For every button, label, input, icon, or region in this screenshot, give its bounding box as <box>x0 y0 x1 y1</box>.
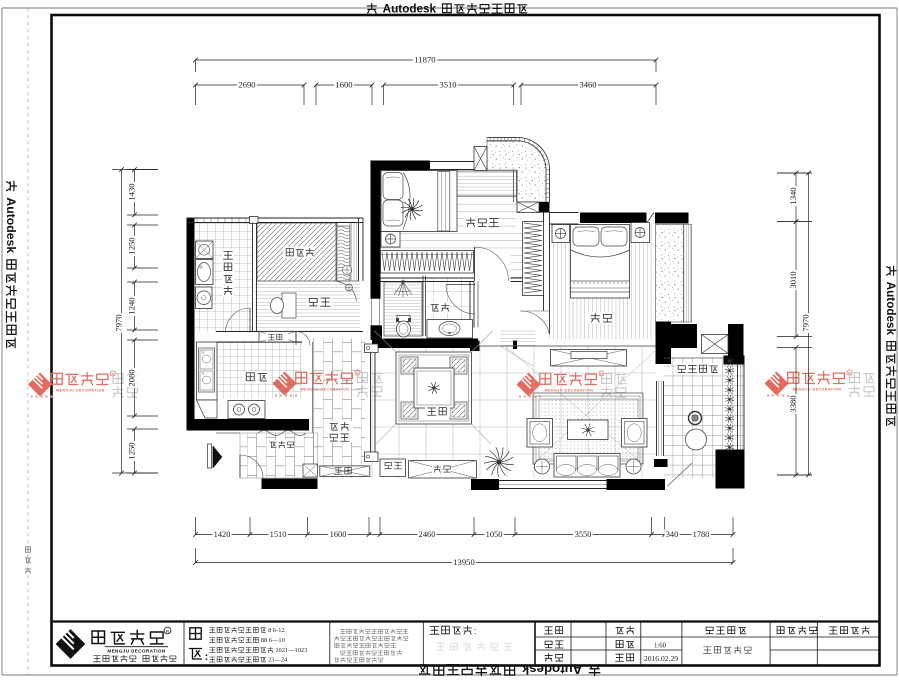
svg-text:3460: 3460 <box>579 79 596 89</box>
svg-text:1250: 1250 <box>127 237 137 254</box>
svg-text:2460: 2460 <box>419 530 436 539</box>
svg-text:MENGJU DECORATION: MENGJU DECORATION <box>56 388 105 392</box>
svg-text:88 6—10: 88 6—10 <box>261 637 285 644</box>
svg-text:1430: 1430 <box>127 183 137 200</box>
svg-text:7970: 7970 <box>114 314 124 331</box>
svg-text:1600: 1600 <box>330 530 347 539</box>
svg-text:1780: 1780 <box>693 530 710 539</box>
svg-text:2016.02.29: 2016.02.29 <box>644 654 678 663</box>
svg-text:2080: 2080 <box>127 369 137 386</box>
svg-text:1250: 1250 <box>127 442 137 459</box>
svg-text:8 6-12: 8 6-12 <box>268 627 285 634</box>
svg-text:11870: 11870 <box>414 54 435 64</box>
svg-text:Autodesk: Autodesk <box>521 662 582 677</box>
svg-text:23—24: 23—24 <box>268 657 288 664</box>
svg-text:1240: 1240 <box>127 297 137 314</box>
svg-text:1510: 1510 <box>270 530 287 539</box>
svg-text:1:60: 1:60 <box>654 643 667 650</box>
svg-text:MENGJU DECORATION: MENGJU DECORATION <box>793 387 842 391</box>
svg-text:Autodesk: Autodesk <box>884 282 897 336</box>
svg-text:2690: 2690 <box>238 79 255 89</box>
svg-text:3380: 3380 <box>788 395 798 412</box>
svg-text:Autodesk: Autodesk <box>4 197 18 253</box>
svg-text:7970: 7970 <box>801 314 811 331</box>
svg-text:3550: 3550 <box>575 530 592 539</box>
svg-text:1340: 1340 <box>788 187 798 204</box>
svg-text:340: 340 <box>666 530 679 539</box>
svg-text:3510: 3510 <box>439 79 456 89</box>
svg-text:1600: 1600 <box>335 79 352 89</box>
svg-text:3010: 3010 <box>788 271 798 288</box>
svg-text::: : <box>474 626 477 636</box>
svg-text::: : <box>205 651 209 663</box>
svg-text:1021—1023: 1021—1023 <box>275 647 307 654</box>
svg-text:Autodesk: Autodesk <box>383 3 437 16</box>
svg-text:13950: 13950 <box>453 557 474 567</box>
svg-text:MENGJU DECORATION: MENGJU DECORATION <box>107 648 166 653</box>
svg-text:1050: 1050 <box>486 530 503 539</box>
svg-text:MENGJU DECORATION: MENGJU DECORATION <box>545 388 594 392</box>
svg-text:1420: 1420 <box>214 530 231 539</box>
